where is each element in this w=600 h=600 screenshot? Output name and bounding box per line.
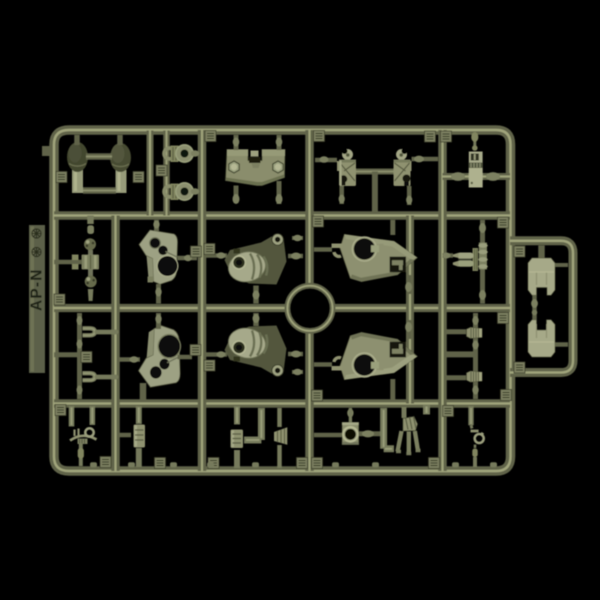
svg-text:AP-N: AP-N: [29, 268, 46, 311]
